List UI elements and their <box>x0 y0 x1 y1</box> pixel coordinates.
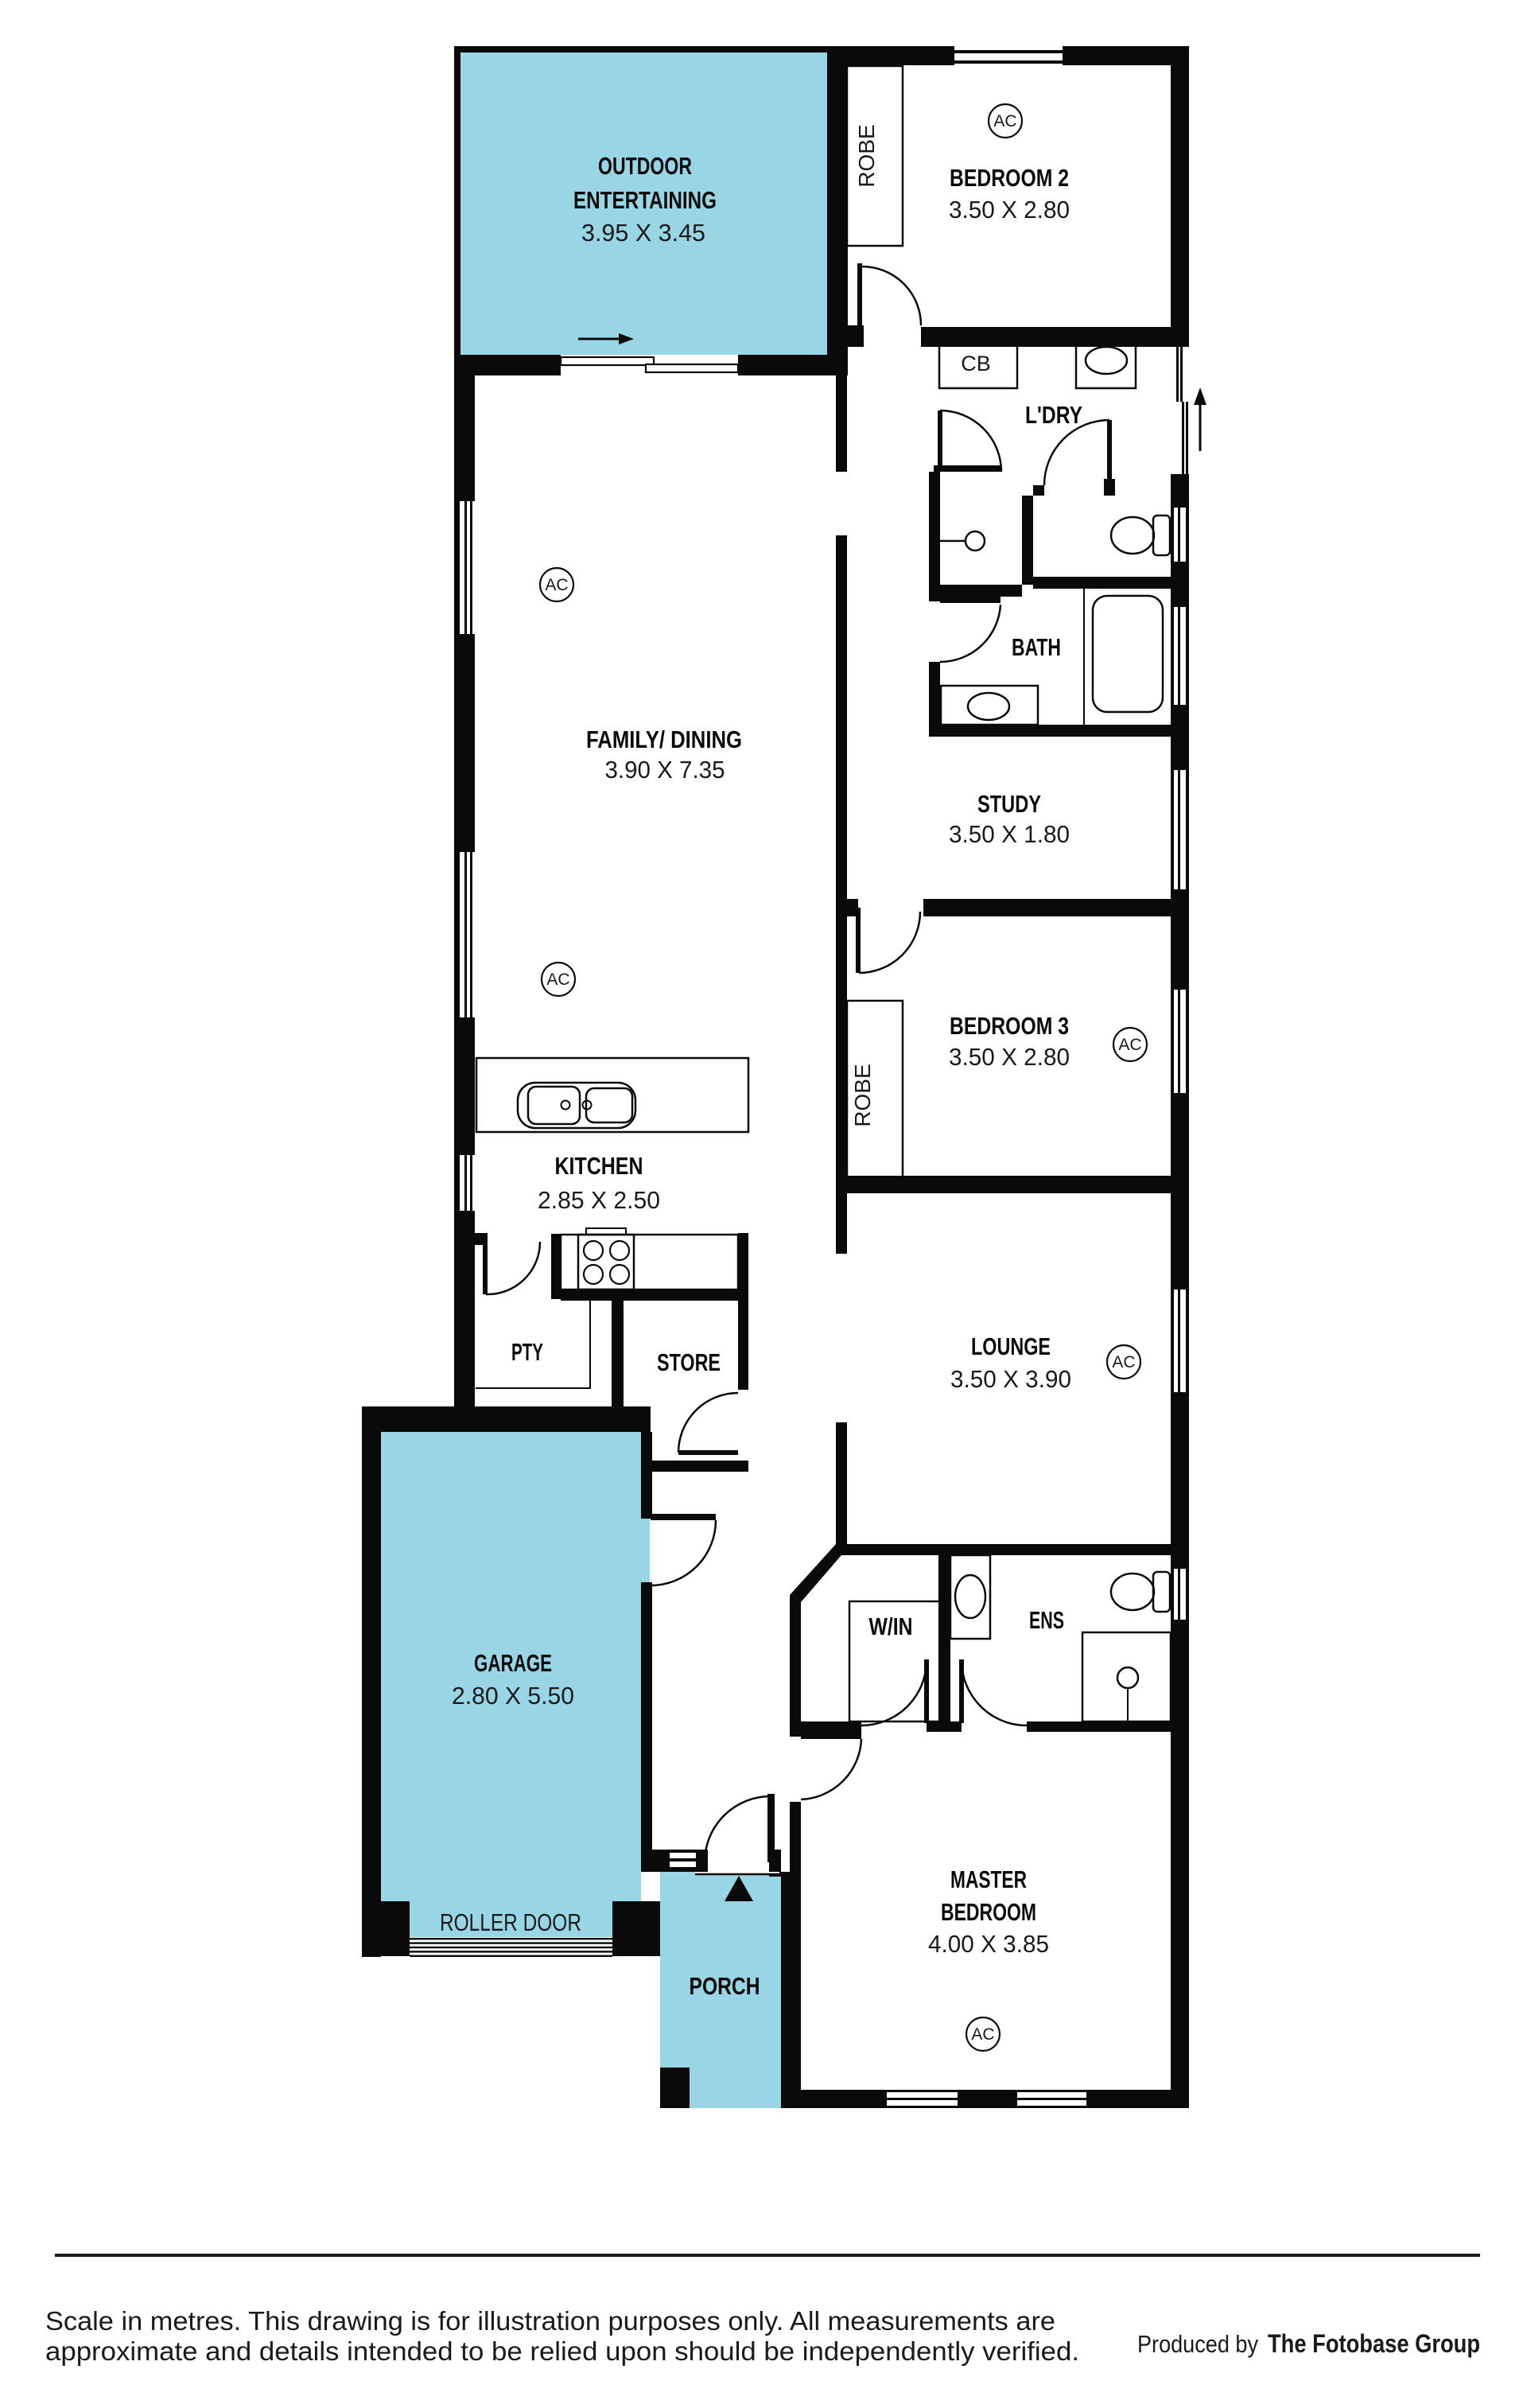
svg-text:Produced by: Produced by <box>1137 2330 1258 2358</box>
svg-text:The Fotobase Group: The Fotobase Group <box>1268 2329 1480 2358</box>
svg-text:CB: CB <box>961 352 991 375</box>
svg-text:KITCHEN: KITCHEN <box>555 1152 643 1180</box>
svg-text:AC: AC <box>993 112 1016 130</box>
svg-text:AC: AC <box>971 2025 994 2044</box>
svg-text:Scale in metres. This drawing: Scale in metres. This drawing is for ill… <box>45 2306 1055 2336</box>
svg-text:3.50 X 3.90: 3.50 X 3.90 <box>950 1365 1071 1393</box>
svg-text:3.50 X 1.80: 3.50 X 1.80 <box>949 820 1070 848</box>
svg-text:3.95 X 3.45: 3.95 X 3.45 <box>581 219 705 247</box>
svg-text:ENS: ENS <box>1029 1606 1064 1634</box>
svg-text:STUDY: STUDY <box>977 790 1041 818</box>
svg-text:ROBE: ROBE <box>850 1064 875 1126</box>
svg-text:FAMILY/ DINING: FAMILY/ DINING <box>586 726 742 753</box>
svg-text:LOUNGE: LOUNGE <box>971 1332 1051 1360</box>
svg-text:ROLLER DOOR: ROLLER DOOR <box>440 1908 581 1936</box>
svg-text:AC: AC <box>546 971 569 989</box>
svg-text:ROBE: ROBE <box>854 124 879 187</box>
svg-text:2.85 X 2.50: 2.85 X 2.50 <box>538 1186 660 1214</box>
svg-text:PORCH: PORCH <box>690 1972 760 2000</box>
svg-text:2.80 X 5.50: 2.80 X 5.50 <box>452 1682 574 1710</box>
svg-text:PTY: PTY <box>511 1338 543 1366</box>
svg-text:OUTDOOR: OUTDOOR <box>598 152 692 180</box>
svg-text:ENTERTAINING: ENTERTAINING <box>573 186 717 214</box>
svg-text:AC: AC <box>1118 1036 1141 1054</box>
svg-text:AC: AC <box>545 576 568 594</box>
svg-text:4.00 X 3.85: 4.00 X 3.85 <box>928 1930 1049 1958</box>
svg-text:STORE: STORE <box>657 1348 721 1376</box>
svg-text:3.50 X 2.80: 3.50 X 2.80 <box>949 196 1070 224</box>
svg-text:3.90 X 7.35: 3.90 X 7.35 <box>605 756 725 784</box>
svg-text:BATH: BATH <box>1012 633 1061 661</box>
svg-text:W/IN: W/IN <box>869 1612 913 1640</box>
svg-text:BEDROOM: BEDROOM <box>941 1898 1036 1926</box>
svg-text:GARAGE: GARAGE <box>474 1649 552 1677</box>
svg-text:BEDROOM 3: BEDROOM 3 <box>950 1012 1069 1040</box>
svg-text:MASTER: MASTER <box>950 1865 1027 1893</box>
svg-text:approximate and details intend: approximate and details intended to be r… <box>45 2336 1079 2366</box>
svg-text:AC: AC <box>1112 1353 1135 1371</box>
svg-text:BEDROOM 2: BEDROOM 2 <box>950 164 1069 192</box>
svg-text:3.50 X 2.80: 3.50 X 2.80 <box>949 1043 1070 1071</box>
svg-text:L'DRY: L'DRY <box>1025 401 1082 429</box>
